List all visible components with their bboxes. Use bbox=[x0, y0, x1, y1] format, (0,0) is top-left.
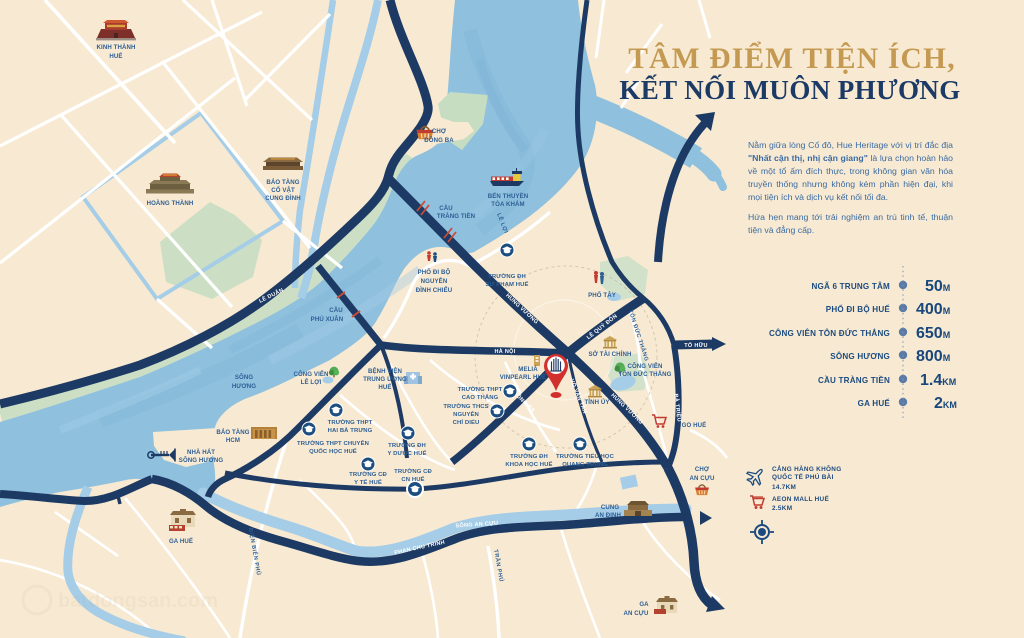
svg-text:Y TẾ HUẾ: Y TẾ HUẾ bbox=[354, 479, 382, 486]
svg-text:ĐÔNG BA: ĐÔNG BA bbox=[424, 136, 454, 144]
svg-text:GA HUẾ: GA HUẾ bbox=[858, 398, 891, 408]
svg-text:PHỐ ĐI BỘ: PHỐ ĐI BỘ bbox=[418, 268, 451, 276]
svg-text:TRƯỜNG CĐ: TRƯỜNG CĐ bbox=[349, 470, 387, 478]
svg-text:TRƯỜNG ĐH: TRƯỜNG ĐH bbox=[510, 452, 548, 460]
svg-text:HƯƠNG: HƯƠNG bbox=[232, 383, 256, 390]
svg-text:ĐÌNH CHIỂU: ĐÌNH CHIỂU bbox=[416, 286, 453, 294]
svg-text:CHỢ: CHỢ bbox=[695, 466, 710, 473]
svg-text:AN CỰU: AN CỰU bbox=[690, 475, 715, 482]
svg-text:TRƯỜNG TIỂU HỌC: TRƯỜNG TIỂU HỌC bbox=[556, 452, 615, 460]
svg-text:CÔNG VIÊN: CÔNG VIÊN bbox=[627, 362, 662, 370]
svg-text:TÒA KHÁM: TÒA KHÁM bbox=[491, 200, 524, 208]
svg-text:BẾN THUYỀN: BẾN THUYỀN bbox=[488, 193, 529, 200]
svg-text:QUỐC HỌC HUẾ: QUỐC HỌC HUẾ bbox=[309, 448, 357, 455]
svg-text:TRƯỜNG CĐ: TRƯỜNG CĐ bbox=[394, 467, 432, 475]
svg-text:TRƯỜNG THPT: TRƯỜNG THPT bbox=[328, 418, 373, 426]
svg-text:KẾT NỐI MUÔN PHƯƠNG: KẾT NỐI MUÔN PHƯƠNG bbox=[619, 74, 960, 105]
svg-text:NGUYỄN: NGUYỄN bbox=[453, 411, 479, 418]
svg-text:SÔNG HƯƠNG: SÔNG HƯƠNG bbox=[179, 456, 224, 464]
svg-text:SƯ PHẠM HUẾ: SƯ PHẠM HUẾ bbox=[486, 281, 529, 288]
svg-text:HAI BÀ TRƯNG: HAI BÀ TRƯNG bbox=[328, 427, 373, 434]
svg-text:CUNG: CUNG bbox=[601, 504, 620, 511]
svg-text:HUẾ: HUẾ bbox=[378, 384, 391, 391]
svg-text:GA: GA bbox=[639, 601, 649, 608]
svg-text:SÔNG HƯƠNG: SÔNG HƯƠNG bbox=[830, 352, 890, 361]
svg-text:KINH THÀNH: KINH THÀNH bbox=[97, 44, 136, 51]
svg-text:NGUYỄN: NGUYỄN bbox=[421, 278, 448, 285]
svg-text:TRƯỜNG THPT: TRƯỜNG THPT bbox=[458, 385, 503, 393]
svg-text:CHỢ: CHỢ bbox=[432, 128, 447, 135]
svg-text:BẢO TÀNG: BẢO TÀNG bbox=[216, 429, 249, 436]
svg-text:TRƯỜNG ĐH: TRƯỜNG ĐH bbox=[388, 441, 426, 449]
svg-text:AN CỰU: AN CỰU bbox=[624, 610, 649, 617]
svg-text:HÀ NỘI: HÀ NỘI bbox=[494, 347, 515, 355]
svg-text:GA HUẾ: GA HUẾ bbox=[169, 538, 193, 545]
svg-text:HCM: HCM bbox=[226, 437, 240, 444]
svg-text:HUẾ: HUẾ bbox=[109, 53, 122, 60]
svg-text:GO HUẾ: GO HUẾ bbox=[682, 422, 707, 429]
svg-text:TÔN ĐỨC THẮNG: TÔN ĐỨC THẮNG bbox=[618, 370, 671, 378]
svg-text:TRƯỜNG THPT CHUYÊN: TRƯỜNG THPT CHUYÊN bbox=[297, 439, 369, 447]
svg-text:CẦU: CẦU bbox=[439, 205, 453, 212]
svg-text:NHÀ HÁT: NHÀ HÁT bbox=[187, 449, 215, 456]
svg-text:CÔNG VIÊN TÔN ĐỨC THẮNG: CÔNG VIÊN TÔN ĐỨC THẮNG bbox=[769, 329, 890, 338]
svg-text:TRUNG ƯƠNG: TRUNG ƯƠNG bbox=[363, 376, 407, 383]
svg-text:14.7KM: 14.7KM bbox=[772, 484, 796, 491]
svg-text:TRƯỜNG ĐH: TRƯỜNG ĐH bbox=[488, 272, 526, 280]
svg-text:2.5KM: 2.5KM bbox=[772, 505, 792, 512]
svg-text:CÔNG VIÊN: CÔNG VIÊN bbox=[293, 370, 328, 378]
svg-text:CUNG ĐÌNH: CUNG ĐÌNH bbox=[265, 194, 300, 202]
svg-text:SÔNG: SÔNG bbox=[235, 373, 254, 381]
svg-text:Y DƯỢC HUẾ: Y DƯỢC HUẾ bbox=[388, 450, 427, 457]
svg-text:QUANG TRUNG: QUANG TRUNG bbox=[562, 462, 608, 468]
svg-text:TỐ HỮU: TỐ HỮU bbox=[684, 342, 707, 349]
svg-text:HOÀNG THÀNH: HOÀNG THÀNH bbox=[147, 200, 194, 207]
svg-text:NGÃ 6 TRUNG TÂM: NGÃ 6 TRUNG TÂM bbox=[811, 282, 890, 291]
svg-text:CỔ VẬT: CỔ VẬT bbox=[271, 187, 295, 194]
svg-text:CHÍ DIỂU: CHÍ DIỂU bbox=[453, 418, 480, 426]
svg-text:TRÀNG TIỀN: TRÀNG TIỀN bbox=[437, 213, 475, 220]
svg-text:TÂM ĐIỂM TIỆN ÍCH,: TÂM ĐIỂM TIỆN ÍCH, bbox=[628, 42, 956, 75]
svg-text:CẢNG HÀNG KHÔNG: CẢNG HÀNG KHÔNG bbox=[772, 464, 841, 473]
svg-text:CẦU: CẦU bbox=[329, 307, 343, 314]
svg-text:KHOA HỌC HUẾ: KHOA HỌC HUẾ bbox=[505, 461, 552, 468]
svg-text:SỞ TÀI CHÍNH: SỞ TÀI CHÍNH bbox=[589, 350, 632, 358]
svg-text:batdongsan.com: batdongsan.com bbox=[58, 590, 218, 612]
svg-text:AN ĐỊNH: AN ĐỊNH bbox=[595, 512, 621, 519]
svg-text:TỈNH ỦY: TỈNH ỦY bbox=[584, 399, 609, 406]
svg-text:MELIÁ: MELIÁ bbox=[518, 366, 538, 373]
svg-text:CN HUẾ: CN HUẾ bbox=[401, 476, 424, 483]
svg-text:PHỐ TÂY: PHỐ TÂY bbox=[588, 292, 616, 299]
svg-text:CAO THẮNG: CAO THẮNG bbox=[462, 393, 499, 401]
svg-text:BỆNH VIỆN: BỆNH VIỆN bbox=[368, 367, 402, 375]
svg-text:PHÚ XUÂN: PHÚ XUÂN bbox=[311, 316, 344, 323]
svg-text:LÊ LỢI: LÊ LỢI bbox=[301, 378, 322, 386]
svg-text:TRƯỜNG THCS: TRƯỜNG THCS bbox=[443, 402, 488, 410]
svg-text:BẢO TÀNG: BẢO TÀNG bbox=[266, 179, 299, 186]
svg-text:VINPEARL HUẾ: VINPEARL HUẾ bbox=[500, 374, 546, 381]
svg-text:CẦU TRÀNG TIỀN: CẦU TRÀNG TIỀN bbox=[818, 375, 890, 385]
svg-text:PHỐ ĐI BỘ HUẾ: PHỐ ĐI BỘ HUẾ bbox=[826, 304, 891, 314]
